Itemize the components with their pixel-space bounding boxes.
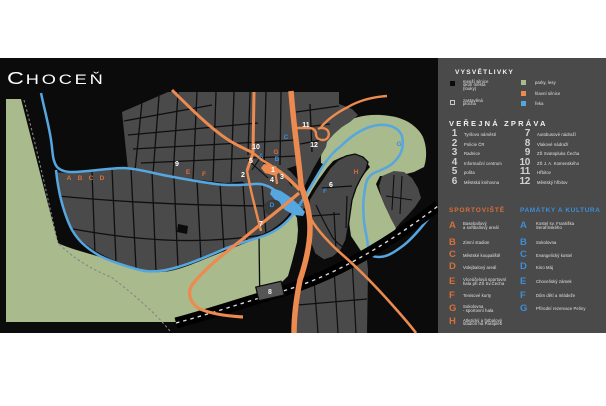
svg-text:E: E — [186, 169, 191, 176]
svg-text:2: 2 — [241, 172, 245, 179]
svg-text:12: 12 — [310, 142, 318, 149]
svg-text:11: 11 — [302, 122, 310, 129]
svg-text:4: 4 — [270, 177, 274, 184]
svg-text:D: D — [270, 202, 275, 209]
svg-text:H: H — [354, 169, 359, 176]
svg-text:D: D — [100, 175, 105, 182]
svg-text:6: 6 — [329, 182, 333, 189]
svg-text:C: C — [89, 175, 94, 182]
svg-text:10: 10 — [252, 144, 260, 151]
svg-text:F: F — [202, 171, 206, 178]
svg-text:7: 7 — [259, 221, 263, 228]
svg-text:F: F — [323, 188, 327, 195]
svg-text:C: C — [7, 68, 27, 88]
svg-text:3: 3 — [280, 174, 284, 181]
svg-text:A: A — [259, 153, 264, 160]
svg-text:8: 8 — [268, 289, 272, 296]
svg-text:C: C — [284, 134, 289, 141]
svg-text:B: B — [275, 156, 280, 163]
svg-text:5: 5 — [249, 158, 253, 165]
svg-text:G: G — [396, 141, 401, 148]
svg-text:A: A — [67, 175, 72, 182]
svg-text:B: B — [78, 175, 83, 182]
svg-text:9: 9 — [175, 161, 179, 168]
svg-text:1: 1 — [271, 167, 275, 174]
svg-text:E: E — [299, 201, 304, 208]
svg-text:HOCEŇ: HOCEŇ — [26, 71, 106, 87]
svg-text:G: G — [273, 149, 278, 156]
